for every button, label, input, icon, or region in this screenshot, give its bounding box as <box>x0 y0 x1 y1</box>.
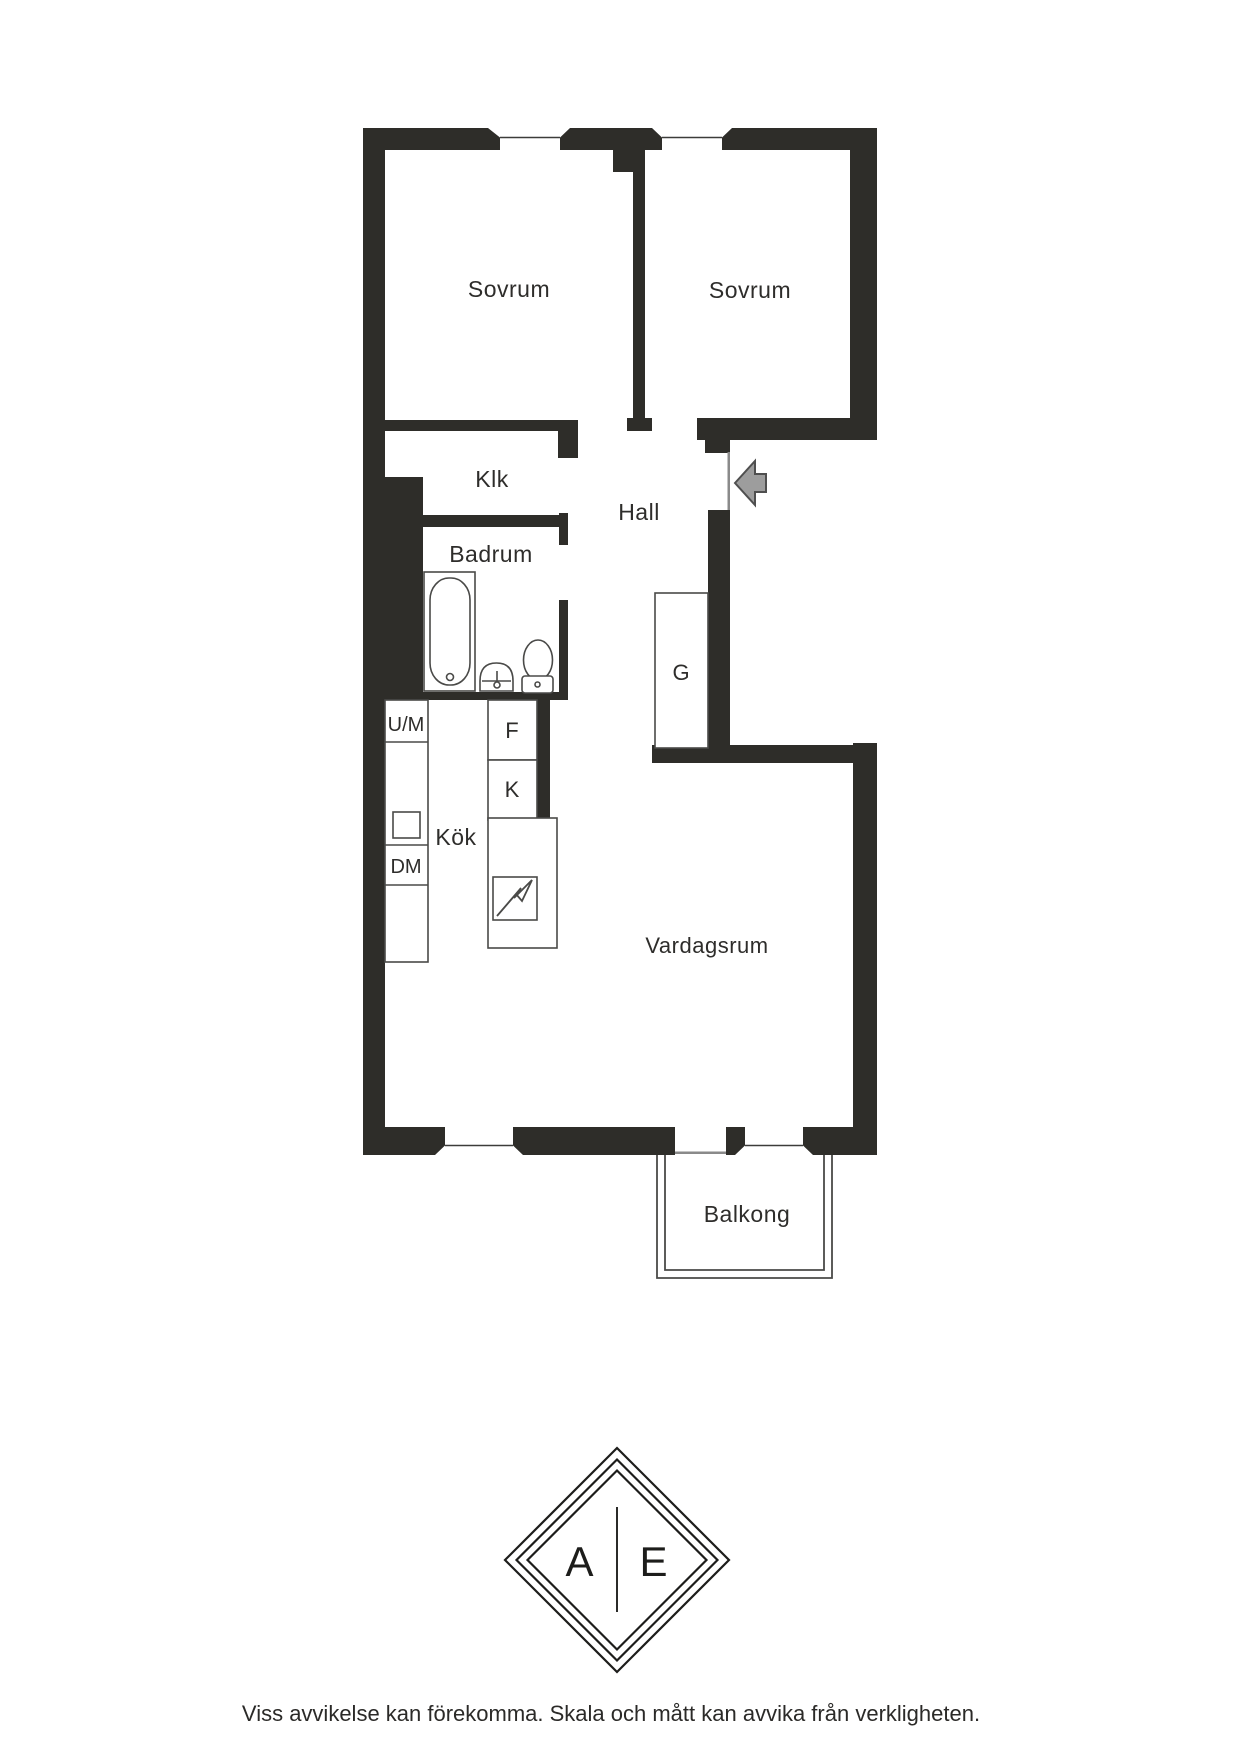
logo-letter-e: E <box>639 1538 668 1585</box>
toilet-bowl <box>524 640 553 680</box>
wall-bathroom-right <box>559 600 568 700</box>
wall-entrance <box>708 510 730 763</box>
window-balcony <box>735 1127 813 1155</box>
room-label-badrum: Badrum <box>449 541 533 567</box>
wall-bedroom-divider <box>633 150 645 418</box>
disclaimer-text: Viss avvikelse kan förekomma. Skala och … <box>242 1701 980 1726</box>
wall-bedroom1-jamb <box>558 420 578 458</box>
entrance-threshold <box>728 452 731 510</box>
window-top-1 <box>488 128 570 150</box>
wall-right-upper <box>850 128 877 440</box>
appliance-label-um: U/M <box>388 714 425 736</box>
bathtub-drain <box>447 674 454 681</box>
window-bottom-1 <box>435 1127 523 1155</box>
appliance-label-dm: DM <box>390 856 421 878</box>
wall-klk-bottom <box>423 515 568 527</box>
room-label-hall: Hall <box>618 499 660 525</box>
balcony-door-jamb <box>726 1127 735 1155</box>
agency-logo: A E <box>505 1448 729 1672</box>
appliance-label-f: F <box>505 718 518 743</box>
wall-klk-jamb <box>559 513 568 545</box>
wall-right-lower <box>853 743 877 1155</box>
wall-bedroom1-bottom <box>383 420 578 431</box>
appliance-label-k: K <box>505 777 520 802</box>
wall-kitchen <box>537 700 550 820</box>
room-label-balkong: Balkong <box>704 1201 791 1227</box>
wardrobe-label: G <box>672 660 689 685</box>
room-label-vardagsrum: Vardagsrum <box>645 933 768 958</box>
wall-entry-jamb-top <box>705 440 730 453</box>
sink-tap <box>494 682 500 688</box>
wall-top <box>363 128 877 150</box>
room-label-sovrum-1: Sovrum <box>468 276 550 302</box>
entrance-arrow-icon <box>735 461 766 505</box>
floor-plan-canvas: Sovrum Sovrum Klk Hall Badrum G U/M F K … <box>0 0 1240 1754</box>
room-label-kok: Kök <box>435 824 476 850</box>
window-top-2 <box>652 128 732 150</box>
balcony-door-threshold <box>675 1152 726 1155</box>
wall-bedroom2-bottom <box>697 418 877 440</box>
room-label-klk: Klk <box>475 466 508 492</box>
toilet-button <box>535 682 540 687</box>
counter-sink <box>393 812 420 838</box>
room-label-sovrum-2: Sovrum <box>709 277 791 303</box>
logo-letter-a: A <box>565 1538 594 1585</box>
wall-divider-foot <box>627 418 652 431</box>
bathtub-inner <box>430 578 470 685</box>
balcony-door-opening <box>675 1127 726 1155</box>
bathroom-fixtures <box>424 572 553 693</box>
wall-left-thick <box>363 477 423 700</box>
